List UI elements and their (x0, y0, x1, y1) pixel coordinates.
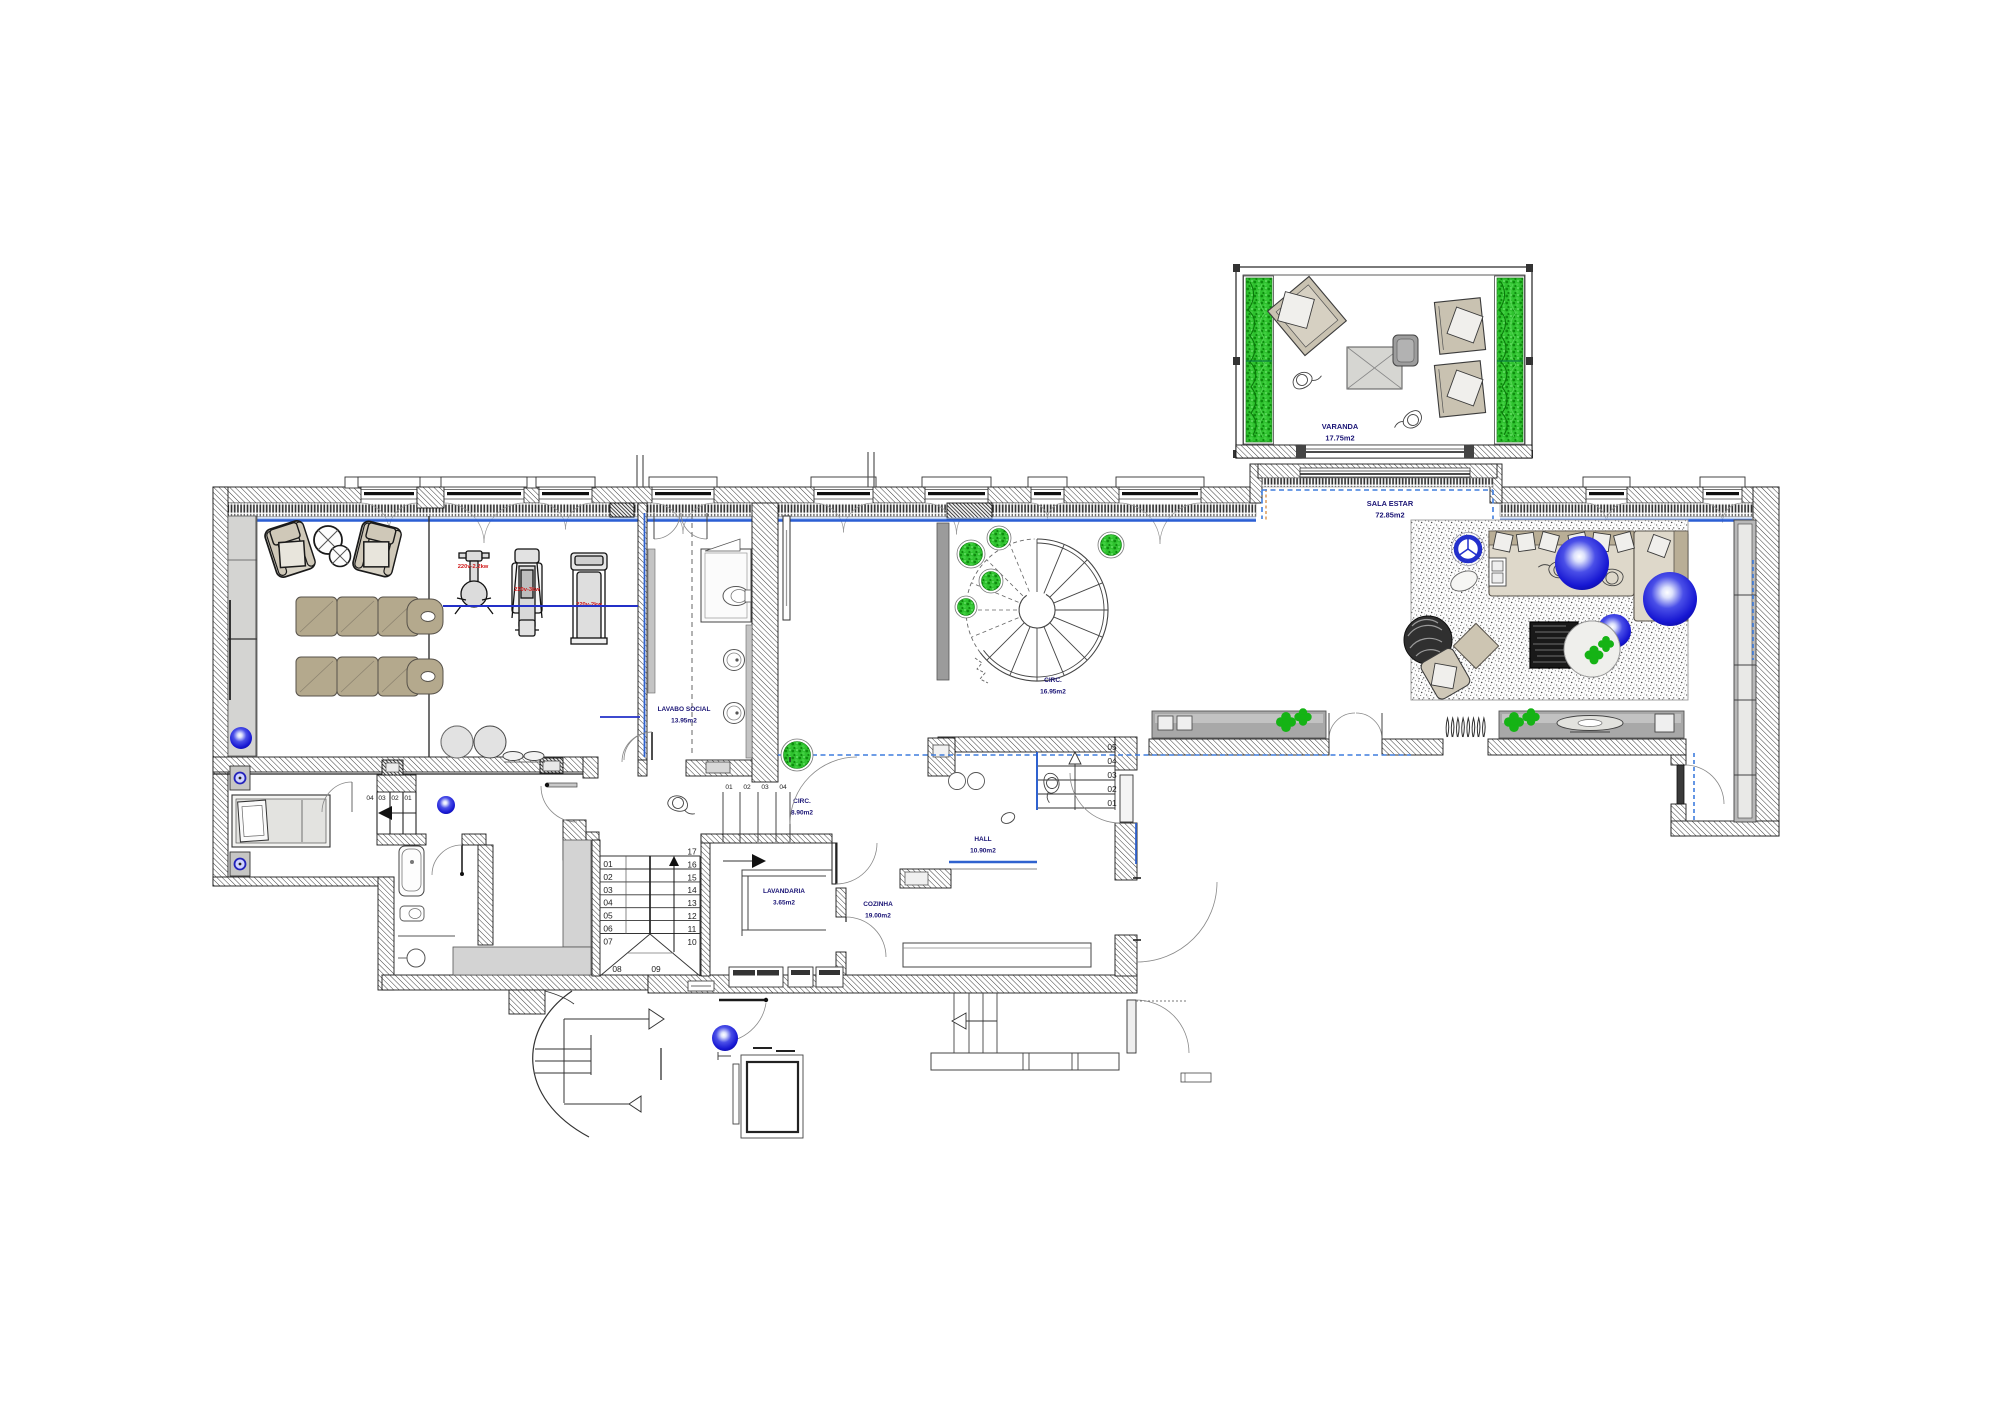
svg-text:02: 02 (1107, 784, 1117, 794)
svg-text:8.90m2: 8.90m2 (791, 810, 813, 817)
svg-text:03: 03 (378, 795, 386, 802)
svg-text:04: 04 (1107, 756, 1117, 766)
svg-text:14: 14 (687, 885, 697, 895)
svg-text:06: 06 (603, 924, 613, 934)
svg-text:03: 03 (761, 784, 769, 791)
svg-text:03: 03 (1107, 770, 1117, 780)
svg-text:04: 04 (603, 898, 613, 908)
svg-text:03: 03 (603, 885, 613, 895)
svg-text:10: 10 (687, 937, 697, 947)
svg-text:CIRC.: CIRC. (1044, 677, 1062, 684)
svg-text:01: 01 (1107, 798, 1117, 808)
svg-text:LAVANDARIA: LAVANDARIA (763, 888, 805, 895)
svg-text:220v-3kw: 220v-3kw (514, 587, 540, 593)
svg-text:12: 12 (687, 911, 697, 921)
svg-text:01: 01 (404, 795, 412, 802)
svg-text:17: 17 (687, 847, 697, 857)
svg-text:VARANDA: VARANDA (1322, 422, 1359, 431)
svg-text:08: 08 (612, 964, 622, 974)
svg-text:02: 02 (603, 872, 613, 882)
svg-text:CIRC.: CIRC. (793, 798, 811, 805)
svg-text:01: 01 (725, 784, 733, 791)
svg-text:COZINHA: COZINHA (863, 901, 893, 908)
svg-text:SALA ESTAR: SALA ESTAR (1367, 499, 1414, 508)
svg-text:02: 02 (391, 795, 399, 802)
svg-text:05: 05 (603, 911, 613, 921)
svg-text:05: 05 (1107, 742, 1117, 752)
svg-text:3.65m2: 3.65m2 (773, 900, 795, 907)
svg-text:HALL: HALL (974, 836, 991, 843)
svg-text:220v-2.2kw: 220v-2.2kw (458, 564, 489, 570)
svg-text:09: 09 (651, 964, 661, 974)
svg-text:15: 15 (687, 872, 697, 882)
svg-text:LAVABO SOCIAL: LAVABO SOCIAL (658, 706, 711, 713)
svg-text:13: 13 (687, 898, 697, 908)
svg-text:17.75m2: 17.75m2 (1325, 434, 1354, 443)
svg-text:02: 02 (743, 784, 751, 791)
svg-text:13.95m2: 13.95m2 (671, 718, 697, 725)
svg-text:04: 04 (779, 784, 787, 791)
svg-text:16.95m2: 16.95m2 (1040, 689, 1066, 696)
svg-text:10.90m2: 10.90m2 (970, 848, 996, 855)
svg-text:04: 04 (366, 795, 374, 802)
svg-text:01: 01 (603, 859, 613, 869)
svg-text:07: 07 (603, 936, 613, 946)
svg-text:11: 11 (688, 924, 697, 934)
svg-text:19.00m2: 19.00m2 (865, 913, 891, 920)
svg-text:16: 16 (687, 859, 697, 869)
svg-text:72.85m2: 72.85m2 (1375, 511, 1404, 520)
